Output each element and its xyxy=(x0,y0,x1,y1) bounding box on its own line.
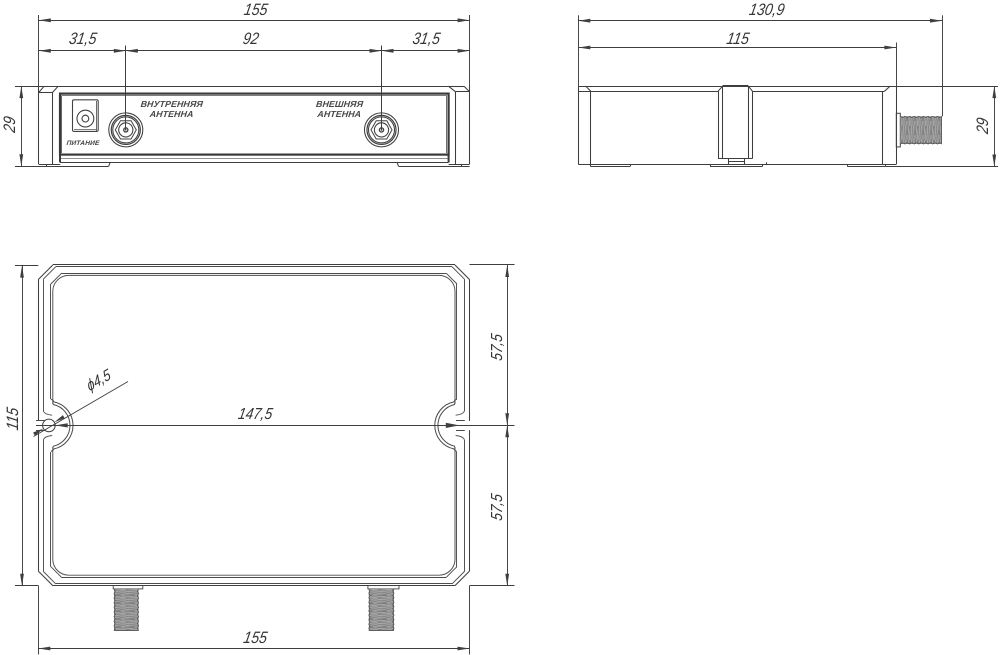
svg-text:92: 92 xyxy=(241,30,260,48)
svg-text:АНТЕННА: АНТЕННА xyxy=(148,109,194,119)
svg-text:29: 29 xyxy=(974,116,992,136)
svg-text:57,5: 57,5 xyxy=(489,332,506,362)
svg-text:155: 155 xyxy=(242,629,269,647)
svg-text:29: 29 xyxy=(1,115,19,135)
svg-text:155: 155 xyxy=(243,1,270,19)
svg-text:130,9: 130,9 xyxy=(748,1,786,19)
svg-text:115: 115 xyxy=(4,405,22,431)
svg-text:57,5: 57,5 xyxy=(489,492,506,522)
svg-text:ПИТАНИЕ: ПИТАНИЕ xyxy=(66,140,100,147)
svg-text:ВНЕШНЯЯ: ВНЕШНЯЯ xyxy=(316,99,365,109)
svg-text:ВНУТРЕННЯЯ: ВНУТРЕННЯЯ xyxy=(140,99,204,109)
svg-text:АНТЕННА: АНТЕННА xyxy=(316,109,362,119)
svg-text:31,5: 31,5 xyxy=(411,30,442,48)
svg-text:31,5: 31,5 xyxy=(68,30,99,48)
svg-text:115: 115 xyxy=(725,30,751,48)
svg-text:147,5: 147,5 xyxy=(237,406,274,423)
